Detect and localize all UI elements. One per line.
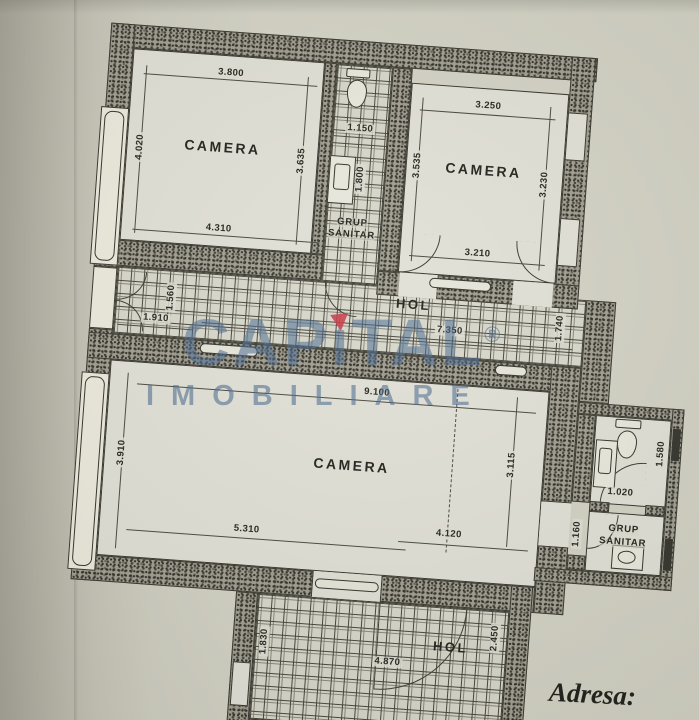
dim-label: 1.910 — [141, 312, 171, 325]
room-label-grup-sanitar-right: GRUP — [608, 524, 639, 536]
watermark-brand-part1: CAP — [182, 305, 330, 379]
registered-trademark-icon: ® — [484, 322, 500, 347]
dim-label: 1.580 — [655, 439, 668, 469]
dim-label: 1.830 — [258, 626, 271, 656]
dim-label: 3.210 — [462, 248, 492, 261]
dim-label: 4.870 — [372, 656, 402, 669]
dim-label: 1.740 — [554, 313, 567, 343]
dim-label: 4.020 — [134, 132, 147, 162]
dim-label: 1.020 — [605, 487, 635, 500]
door-opening — [512, 281, 554, 308]
address-label: Adresa: — [548, 678, 636, 712]
dim-label: 3.230 — [538, 170, 551, 200]
dim-label: 5.310 — [231, 524, 261, 537]
sink-basin — [333, 163, 351, 190]
watermark-brand: CAPıTAL® — [182, 306, 500, 379]
dim-label: 3.250 — [473, 100, 503, 113]
wall-niche — [230, 661, 251, 706]
watermark-brand-part2: TAL — [352, 305, 484, 379]
wall-segment — [567, 554, 586, 570]
dim-label: 3.635 — [295, 146, 308, 176]
watermark-subtitle: IMOBILIARE — [146, 382, 487, 411]
room-label-grup-sanitar-top: GRUP — [337, 217, 368, 229]
toilet-icon — [615, 419, 642, 430]
dim-label: 4.120 — [434, 528, 464, 541]
wall-segment — [645, 505, 666, 516]
dim-label: 2.450 — [489, 623, 502, 653]
dim-label: 1.160 — [571, 519, 584, 549]
door-opening — [538, 501, 571, 547]
dim-label: 3.535 — [411, 150, 424, 180]
wall-niche — [565, 112, 588, 161]
dim-label: 4.310 — [203, 223, 233, 236]
dim-label: 1.560 — [165, 282, 178, 312]
dim-label: 3.115 — [506, 450, 519, 480]
scanned-floor-plan-page: 3.800 4.020 3.635 4.310 CAMERA 1.150 1.8… — [0, 0, 699, 720]
dim-label: 3.910 — [116, 437, 129, 467]
dim-label: 1.150 — [345, 123, 375, 136]
dim-label: 3.800 — [216, 67, 246, 80]
toilet-icon — [346, 68, 371, 79]
wall-niche — [557, 218, 580, 267]
sink-basin — [598, 447, 613, 474]
room-label-hol-bottom: HOL — [433, 639, 469, 655]
wall-segment — [579, 300, 616, 404]
page-top-shadow — [0, 0, 699, 14]
watermark-brand-i-red-triangle-icon: ı — [330, 306, 351, 379]
dim-label: 1.800 — [354, 164, 367, 194]
